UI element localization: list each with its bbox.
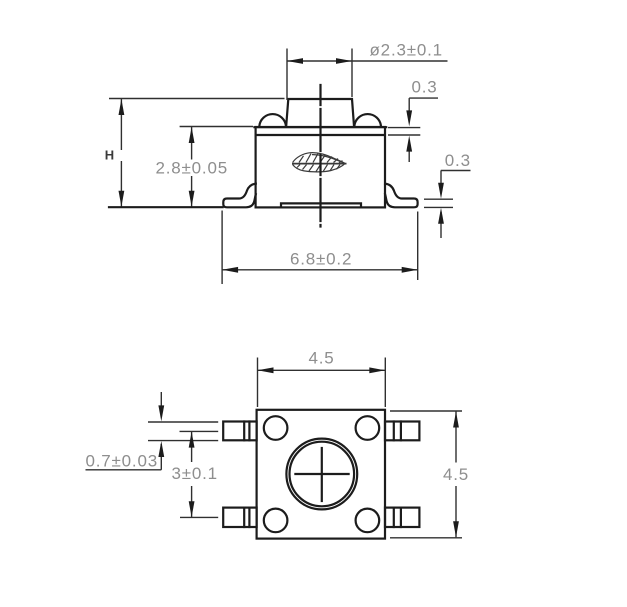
svg-text:4.5: 4.5 [309,349,335,368]
svg-text:0.3: 0.3 [445,151,471,170]
svg-text:H: H [105,148,114,163]
svg-text:0.7±0.03: 0.7±0.03 [86,452,158,471]
svg-text:6.8±0.2: 6.8±0.2 [290,250,352,269]
svg-text:4.5: 4.5 [443,465,469,484]
svg-text:0.3: 0.3 [412,78,438,97]
svg-text:2.8±0.05: 2.8±0.05 [156,159,228,178]
svg-text:ø2.3±0.1: ø2.3±0.1 [370,41,443,60]
svg-text:3±0.1: 3±0.1 [172,464,218,483]
